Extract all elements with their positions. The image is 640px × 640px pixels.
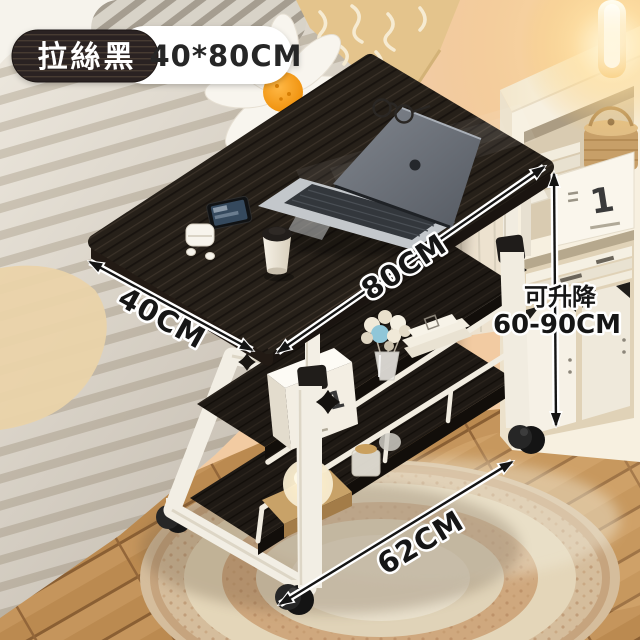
dimension-label-lift: 可升降 — [524, 283, 597, 311]
finish-badge-label: 拉絲黑 — [38, 40, 137, 75]
cork-jar — [352, 444, 380, 476]
earbud-left — [187, 249, 196, 256]
scene: 1 — [0, 0, 640, 640]
product-photo: 1 — [0, 0, 640, 640]
laptop-logo — [410, 160, 421, 171]
dimension-label-lift-range: 60-90CM — [493, 310, 621, 340]
earbud-right — [206, 253, 215, 260]
badges: 拉絲黑 40*80CM — [12, 26, 303, 84]
size-badge-label: 40*80CM — [149, 39, 302, 73]
glass-cup — [379, 433, 401, 451]
